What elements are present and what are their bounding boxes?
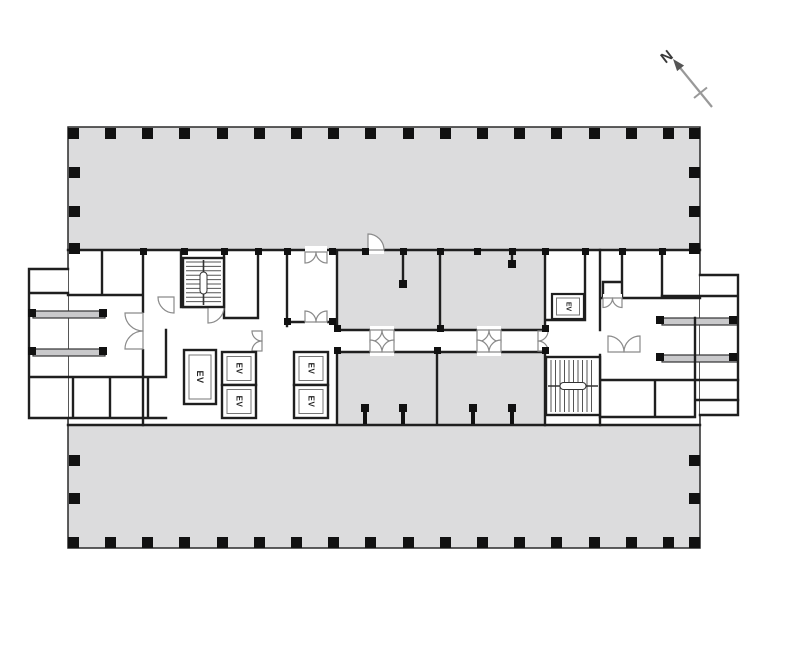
louver-right-1 [662, 318, 738, 325]
elevator-left-3: EV [294, 352, 328, 385]
elevator-left-service: EV [184, 350, 216, 404]
elevator-label: EV [235, 396, 244, 408]
elevator-left-1: EV [222, 352, 256, 385]
stair-left [183, 258, 224, 307]
north-arrow-line [677, 64, 712, 107]
floor-plan-canvas: EV EV EV EV EV EV [0, 0, 787, 658]
louver-right-2 [662, 355, 738, 362]
louver-left-2 [33, 349, 105, 356]
elevator-label: EV [235, 363, 244, 375]
north-indicator: N [657, 47, 712, 107]
louver-left-1 [33, 311, 105, 318]
left-wing [29, 269, 68, 418]
elevator-label: EV [565, 302, 572, 312]
floor-plan-page: EV EV EV EV EV EV [0, 0, 787, 658]
elevator-left-4: EV [294, 385, 328, 418]
elevator-right-service: EV [552, 294, 584, 319]
elevator-label: EV [195, 370, 205, 383]
north-arrow-tick [694, 88, 707, 99]
elevator-label: EV [307, 363, 316, 375]
elevator-left-2: EV [222, 385, 256, 418]
north-label: N [657, 47, 676, 67]
stair-right [546, 357, 600, 415]
elevator-label: EV [307, 396, 316, 408]
